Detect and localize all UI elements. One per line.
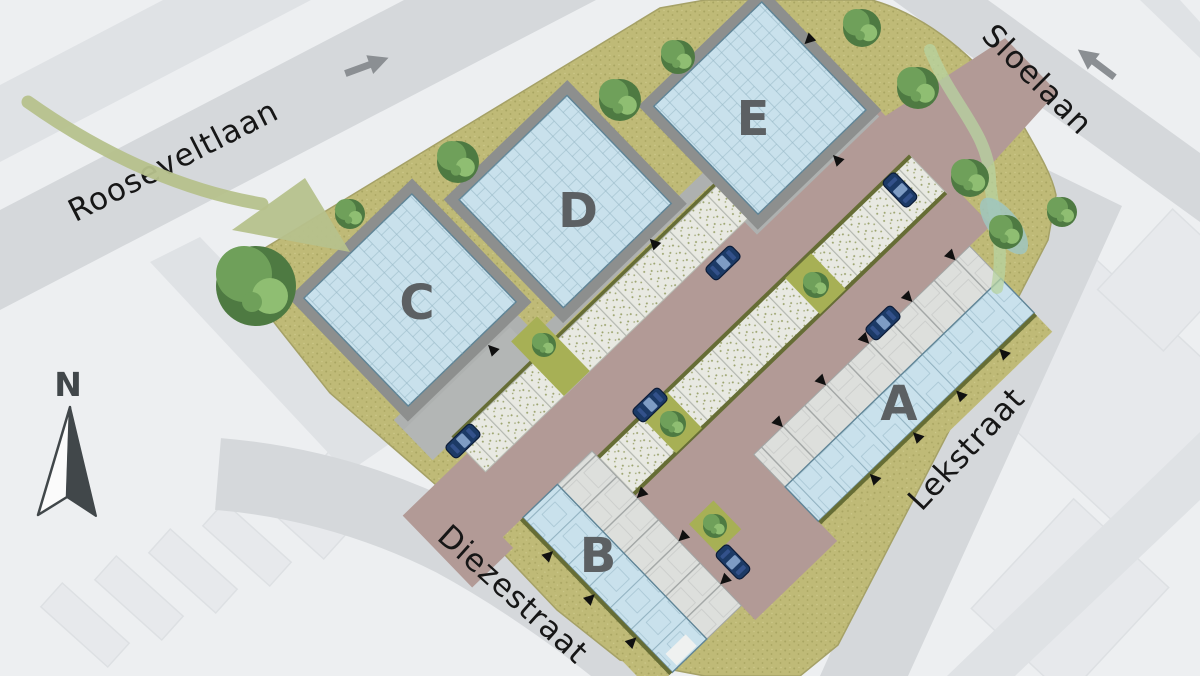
tree-icon bbox=[951, 159, 989, 197]
tree-icon bbox=[897, 67, 939, 109]
building-label-c: C bbox=[399, 275, 434, 331]
building-label-b: B bbox=[580, 528, 617, 584]
tree-icon bbox=[989, 215, 1023, 249]
compass-label: N bbox=[54, 365, 82, 404]
tree-icon bbox=[599, 79, 641, 121]
tree-icon bbox=[532, 333, 556, 357]
tree-icon bbox=[437, 141, 479, 183]
tree-icon bbox=[216, 246, 296, 326]
tree-icon bbox=[843, 9, 881, 47]
tree-icon bbox=[703, 514, 727, 538]
site-plan-canvas: Rooseveltlaan Sloelaan Lekstraat Diezest… bbox=[0, 0, 1200, 676]
tree-icon bbox=[803, 272, 829, 298]
building-label-a: A bbox=[880, 376, 917, 432]
building-label-e: E bbox=[737, 91, 770, 147]
site-plan: Rooseveltlaan Sloelaan Lekstraat Diezest… bbox=[0, 0, 1200, 676]
building-label-d: D bbox=[558, 183, 598, 239]
tree-icon bbox=[335, 199, 365, 229]
tree-icon bbox=[661, 40, 695, 74]
tree-icon bbox=[660, 411, 686, 437]
tree-icon bbox=[1047, 197, 1077, 227]
